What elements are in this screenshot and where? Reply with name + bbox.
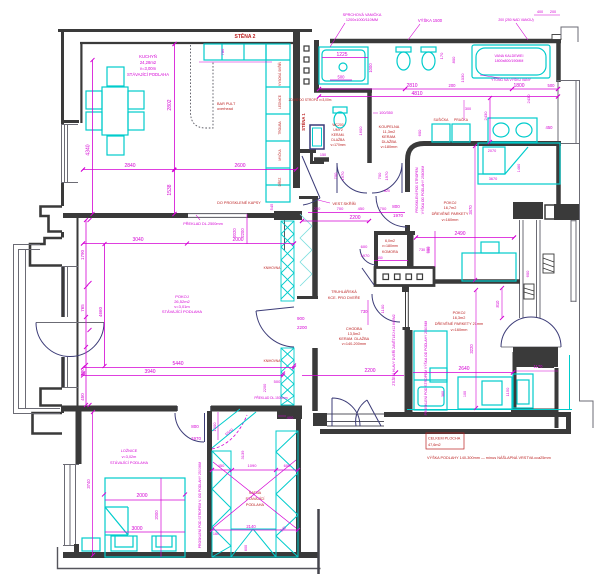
svg-text:3670: 3670 bbox=[489, 177, 497, 181]
svg-text:13,5m2: 13,5m2 bbox=[348, 332, 361, 336]
svg-text:2200: 2200 bbox=[240, 228, 245, 238]
svg-text:KUCHYŇ: KUCHYŇ bbox=[139, 54, 157, 59]
svg-text:810: 810 bbox=[495, 300, 500, 308]
svg-text:1090: 1090 bbox=[248, 463, 258, 468]
svg-text:1970: 1970 bbox=[340, 171, 345, 181]
svg-text:3139: 3139 bbox=[240, 450, 245, 460]
svg-text:VEST.SKŘÍŇ: VEST.SKŘÍŇ bbox=[332, 201, 355, 206]
svg-text:600: 600 bbox=[244, 545, 248, 551]
svg-text:DŘEVĚNÉ PARKETY: DŘEVĚNÉ PARKETY bbox=[432, 211, 469, 216]
svg-text:ŠATNA: ŠATNA bbox=[249, 490, 262, 495]
svg-text:450: 450 bbox=[358, 206, 365, 211]
svg-text:2020: 2020 bbox=[232, 228, 237, 238]
svg-text:1970: 1970 bbox=[393, 213, 404, 218]
svg-text:DLAŽBA: DLAŽBA bbox=[382, 139, 397, 144]
svg-text:v=140-200mm: v=140-200mm bbox=[342, 342, 366, 346]
svg-text:KOUPELNA: KOUPELNA bbox=[379, 125, 400, 129]
svg-text:3040: 3040 bbox=[132, 237, 143, 243]
svg-text:VYSOKÁ SKŘÍŇ: VYSOKÁ SKŘÍŇ bbox=[277, 61, 282, 85]
svg-text:PROSKLENÍ POD STROPEM V. OD PO: PROSKLENÍ POD STROPEM V. OD PODLAHY 2500… bbox=[198, 462, 202, 549]
svg-text:VÝŠKA 1500: VÝŠKA 1500 bbox=[418, 18, 443, 23]
svg-text:1538: 1538 bbox=[167, 184, 173, 195]
svg-text:3000: 3000 bbox=[131, 526, 142, 532]
svg-text:PRAČKA: PRAČKA bbox=[454, 117, 469, 122]
svg-text:47,6m2: 47,6m2 bbox=[428, 443, 441, 447]
svg-text:1800: 1800 bbox=[513, 83, 524, 89]
svg-text:1200x1000/110MM: 1200x1000/110MM bbox=[346, 18, 378, 22]
svg-text:UMY2: UMY2 bbox=[333, 128, 343, 132]
svg-text:ZTIŽENÍ HLAVY DVEŘÍ ZAVĚTLEJ #: ZTIŽENÍ HLAVY DVEŘÍ ZAVĚTLEJ #12 KG/M2 bbox=[391, 314, 396, 386]
svg-text:v=180mm: v=180mm bbox=[381, 145, 398, 149]
svg-text:360: 360 bbox=[441, 391, 445, 397]
svg-text:CHODBA: CHODBA bbox=[346, 327, 363, 331]
svg-text:900: 900 bbox=[425, 246, 430, 253]
svg-text:16,7m2: 16,7m2 bbox=[444, 206, 457, 210]
svg-text:1800x800/190MM: 1800x800/190MM bbox=[495, 59, 524, 63]
svg-text:800: 800 bbox=[392, 204, 400, 209]
svg-text:450: 450 bbox=[546, 125, 554, 130]
svg-text:700: 700 bbox=[333, 172, 338, 179]
svg-text:KCE. PRO DVEŘE: KCE. PRO DVEŘE bbox=[328, 295, 361, 300]
svg-text:SUŠIČKA: SUŠIČKA bbox=[434, 117, 450, 122]
svg-text:1100: 1100 bbox=[380, 304, 385, 313]
svg-text:3740: 3740 bbox=[86, 479, 91, 489]
svg-text:700: 700 bbox=[337, 206, 344, 211]
svg-text:786: 786 bbox=[220, 48, 225, 55]
svg-text:600: 600 bbox=[361, 244, 368, 249]
svg-text:2810: 2810 bbox=[406, 83, 417, 89]
svg-text:2200: 2200 bbox=[263, 384, 267, 392]
svg-text:LEDNICE: LEDNICE bbox=[278, 95, 282, 109]
svg-text:KERAM.: KERAM. bbox=[382, 135, 397, 139]
svg-text:v=160mm: v=160mm bbox=[442, 218, 459, 222]
svg-text:100/350: 100/350 bbox=[379, 111, 393, 115]
svg-text:STÁVAJÍCÍ PODLAHA: STÁVAJÍCÍ PODLAHA bbox=[127, 72, 169, 77]
svg-text:800: 800 bbox=[451, 56, 456, 63]
svg-text:v=3,00m: v=3,00m bbox=[140, 66, 157, 71]
svg-text:2000: 2000 bbox=[154, 510, 159, 520]
svg-text:2200: 2200 bbox=[297, 325, 308, 330]
svg-text:KERAM. DLAŽBA: KERAM. DLAŽBA bbox=[339, 336, 370, 341]
svg-text:KNIHOVNA: KNIHOVNA bbox=[264, 266, 282, 270]
svg-text:700: 700 bbox=[377, 172, 382, 179]
svg-text:2070: 2070 bbox=[488, 149, 496, 153]
svg-text:PODLAHA: PODLAHA bbox=[246, 503, 265, 507]
svg-text:VÝŠKA PODLAHY 140-300mm — mín: VÝŠKA PODLAHY 140-300mm — mínus NÁŠLAPNÁ… bbox=[427, 455, 551, 460]
svg-text:500: 500 bbox=[338, 75, 346, 80]
svg-text:KNIHOVNA: KNIHOVNA bbox=[264, 359, 282, 363]
svg-text:STĚNA 2: STĚNA 2 bbox=[235, 32, 256, 40]
svg-text:MYČKA: MYČKA bbox=[277, 148, 282, 160]
svg-text:BAR PULT: BAR PULT bbox=[217, 102, 236, 106]
svg-text:730: 730 bbox=[361, 309, 369, 314]
svg-text:PŘEKLAD DL.1500mm: PŘEKLAD DL.1500mm bbox=[254, 395, 287, 400]
svg-text:150: 150 bbox=[320, 153, 326, 157]
svg-text:400: 400 bbox=[537, 10, 543, 14]
svg-text:2802: 2802 bbox=[167, 99, 173, 110]
svg-text:1460: 1460 bbox=[517, 164, 521, 172]
svg-text:24,28m2: 24,28m2 bbox=[140, 60, 157, 65]
svg-text:1225: 1225 bbox=[336, 52, 347, 58]
svg-text:1790: 1790 bbox=[80, 249, 85, 260]
svg-text:200: 200 bbox=[449, 83, 457, 88]
svg-text:11,3m2: 11,3m2 bbox=[383, 130, 395, 134]
svg-text:DLAŽBA: DLAŽBA bbox=[331, 137, 345, 142]
svg-text:500: 500 bbox=[274, 379, 281, 384]
svg-text:450: 450 bbox=[218, 463, 225, 468]
svg-text:600: 600 bbox=[417, 129, 422, 136]
svg-text:CELKEM PLOCHA: CELKEM PLOCHA bbox=[428, 437, 461, 441]
svg-text:100: 100 bbox=[463, 391, 467, 397]
svg-text:TROUBA: TROUBA bbox=[278, 120, 282, 134]
svg-text:1970: 1970 bbox=[361, 253, 371, 258]
svg-text:2490: 2490 bbox=[454, 231, 465, 237]
svg-text:1150: 1150 bbox=[505, 387, 510, 396]
svg-text:900: 900 bbox=[297, 316, 305, 321]
svg-text:DO PROSKLENÉ KAPSY: DO PROSKLENÉ KAPSY bbox=[217, 200, 261, 205]
svg-text:800: 800 bbox=[191, 424, 199, 429]
svg-text:1600: 1600 bbox=[358, 126, 363, 136]
svg-text:200: 200 bbox=[550, 10, 556, 14]
svg-text:VÝŠKA OD PODLAHY 2580MM: VÝŠKA OD PODLAHY 2580MM bbox=[420, 166, 425, 215]
svg-text:5440: 5440 bbox=[172, 361, 183, 367]
svg-text:4810: 4810 bbox=[411, 91, 422, 97]
svg-text:TRUHLÁŘSKÁ: TRUHLÁŘSKÁ bbox=[331, 289, 357, 294]
svg-text:250: 250 bbox=[314, 206, 321, 211]
svg-text:150: 150 bbox=[377, 256, 383, 260]
svg-text:16,3m2: 16,3m2 bbox=[453, 316, 466, 320]
svg-text:1000: 1000 bbox=[368, 63, 373, 73]
svg-text:KOMORA: KOMORA bbox=[382, 250, 399, 254]
svg-text:170: 170 bbox=[439, 52, 444, 59]
svg-text:POKOJ: POKOJ bbox=[453, 311, 466, 315]
svg-text:4660: 4660 bbox=[98, 306, 103, 317]
svg-text:KERAM.: KERAM. bbox=[332, 133, 345, 137]
svg-text:WC200: WC200 bbox=[332, 123, 343, 127]
svg-text:2640: 2640 bbox=[458, 366, 469, 372]
svg-text:765: 765 bbox=[80, 304, 85, 312]
svg-text:700: 700 bbox=[380, 206, 387, 211]
svg-text:1000: 1000 bbox=[212, 422, 217, 432]
svg-text:1970: 1970 bbox=[384, 171, 389, 181]
svg-text:545: 545 bbox=[269, 203, 274, 210]
svg-text:3940: 3940 bbox=[144, 369, 155, 375]
svg-text:2200: 2200 bbox=[349, 215, 360, 221]
svg-text:LOŽNICE: LOŽNICE bbox=[121, 448, 138, 453]
svg-text:3220: 3220 bbox=[469, 344, 474, 354]
svg-text:VANA KALDEWEI: VANA KALDEWEI bbox=[495, 54, 524, 58]
svg-text:2140: 2140 bbox=[246, 524, 256, 529]
svg-text:SPRCHOVÁ VANIČKA: SPRCHOVÁ VANIČKA bbox=[343, 12, 382, 17]
svg-text:PŘEKLAD DL.2500mm: PŘEKLAD DL.2500mm bbox=[183, 221, 222, 226]
svg-text:POKOJ: POKOJ bbox=[444, 201, 457, 205]
svg-text:2430: 2430 bbox=[526, 94, 531, 104]
svg-text:820: 820 bbox=[384, 189, 390, 193]
svg-text:600: 600 bbox=[525, 270, 530, 277]
svg-text:1170: 1170 bbox=[533, 364, 543, 369]
svg-text:3470: 3470 bbox=[468, 205, 473, 215]
svg-text:2000: 2000 bbox=[136, 493, 147, 499]
svg-text:PROSKLENÍ POD STROPEM: PROSKLENÍ POD STROPEM bbox=[415, 167, 419, 213]
svg-text:500: 500 bbox=[548, 83, 556, 88]
svg-text:2840: 2840 bbox=[124, 163, 135, 169]
svg-text:6,0m2: 6,0m2 bbox=[385, 239, 395, 243]
svg-text:450: 450 bbox=[80, 393, 85, 401]
svg-text:200 (250 NAD VANOU): 200 (250 NAD VANOU) bbox=[498, 18, 533, 22]
svg-text:STÁVAJÍCÍ PODLAHA: STÁVAJÍCÍ PODLAHA bbox=[162, 309, 202, 314]
svg-text:2430: 2430 bbox=[483, 111, 488, 121]
svg-text:400: 400 bbox=[287, 415, 294, 420]
svg-text:300: 300 bbox=[465, 107, 471, 111]
svg-text:v=180mm: v=180mm bbox=[382, 244, 398, 248]
svg-text:v=170mm: v=170mm bbox=[331, 143, 346, 147]
svg-text:1030: 1030 bbox=[460, 73, 465, 83]
svg-text:1970: 1970 bbox=[191, 436, 202, 441]
svg-text:4340: 4340 bbox=[86, 144, 92, 155]
svg-text:STÁVAJÍCÍ PODLAHA: STÁVAJÍCÍ PODLAHA bbox=[110, 461, 149, 465]
svg-text:160: 160 bbox=[213, 532, 219, 536]
svg-text:STĚNA 1: STĚNA 1 bbox=[301, 113, 306, 131]
svg-text:2200: 2200 bbox=[364, 368, 375, 374]
svg-text:overhead: overhead bbox=[217, 107, 233, 111]
svg-text:PROSKLENÍ POD STROPEM VÝŠKA OD: PROSKLENÍ POD STROPEM VÝŠKA OD PODLAHY 2… bbox=[423, 320, 428, 415]
svg-text:ZDIVO DO STROPU v=3,00m: ZDIVO DO STROPU v=3,00m bbox=[289, 98, 332, 102]
svg-text:v=3,02m: v=3,02m bbox=[122, 455, 137, 459]
svg-text:2600: 2600 bbox=[234, 163, 245, 169]
svg-text:DŘEZ: DŘEZ bbox=[277, 178, 282, 187]
svg-text:v=160mm: v=160mm bbox=[451, 328, 468, 332]
